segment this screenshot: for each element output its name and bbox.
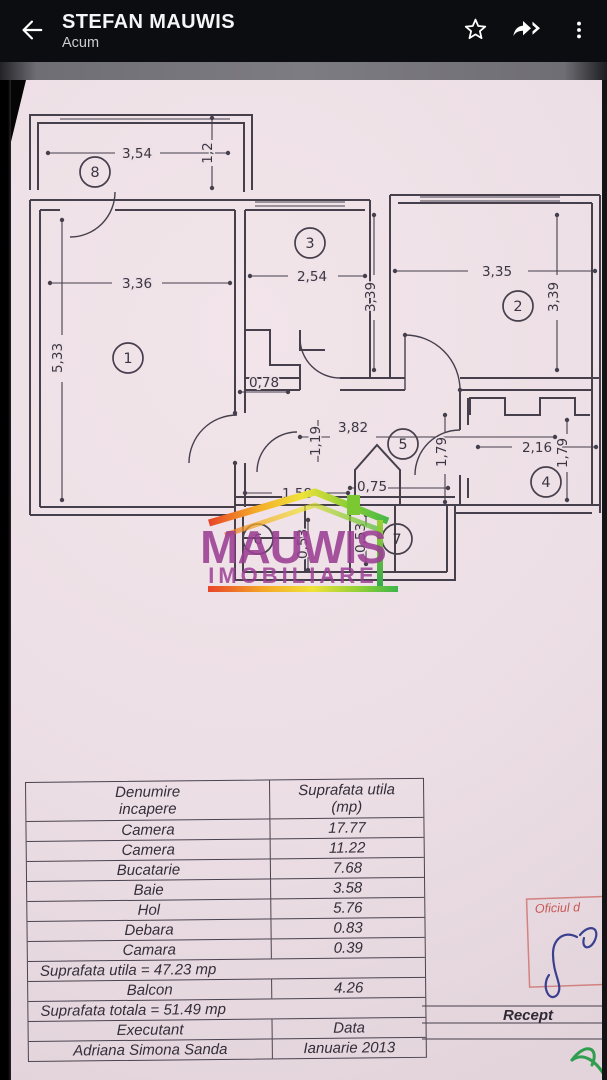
room-name-cell: Hol xyxy=(27,899,271,921)
dimension-label: 1,79 xyxy=(434,437,450,467)
table-row: Camera11.22 xyxy=(27,837,424,861)
vertical-dots-icon xyxy=(568,19,590,44)
dimension-label: 5,33 xyxy=(50,343,66,373)
media-timestamp: Acum xyxy=(62,34,453,52)
room-number: 5 xyxy=(398,437,407,453)
table-row: Suprafata utila = 47.23 mp xyxy=(28,957,425,981)
room-name-cell: Camera xyxy=(26,819,270,841)
room-name-cell: Executant xyxy=(29,1019,273,1041)
phone-screen: STEFAN MAUWIS Acum xyxy=(0,0,607,1080)
dimension-label: 2,54 xyxy=(297,269,327,285)
header-col-area: Suprafata utila (mp) xyxy=(270,779,423,819)
back-button[interactable] xyxy=(14,14,48,48)
room-area-cell: 5.76 xyxy=(271,898,424,919)
room-area-cell: 17.77 xyxy=(270,818,423,839)
room-area-cell: Data xyxy=(272,1018,425,1039)
plan-windows xyxy=(60,119,560,206)
table-body: Camera17.77Camera11.22Bucatarie7.68Baie3… xyxy=(26,817,425,1061)
plan-door-arcs xyxy=(70,192,460,475)
dimension-label: 1,19 xyxy=(308,426,324,456)
room-name-cell: Adriana Simona Sanda xyxy=(29,1039,273,1061)
photo-left-edge xyxy=(0,80,11,1080)
dimension-label: 3,36 xyxy=(122,276,152,292)
room-area-cell: 0.83 xyxy=(271,918,424,939)
room-number: 2 xyxy=(513,299,522,315)
room-name-cell: Debara xyxy=(27,919,271,941)
document-photo[interactable]: 81325467 3,541,23,362,543,353,393,395,33… xyxy=(0,80,607,1080)
dimension-label: 3,39 xyxy=(546,282,562,312)
table-row: ExecutantData xyxy=(29,1017,426,1041)
star-button[interactable] xyxy=(453,9,497,53)
dimension-label: 3,39 xyxy=(363,282,379,312)
room-name-cell: Bucatarie xyxy=(27,859,271,881)
header-name-line2: incapere xyxy=(119,800,177,818)
areas-table: Denumire incapere Suprafata utila (mp) C… xyxy=(25,778,427,1062)
photo-right-edge xyxy=(602,80,607,1080)
room-name-cell: Camara xyxy=(28,939,272,961)
dimension-label: 1,79 xyxy=(555,438,571,468)
forward-button[interactable] xyxy=(505,9,549,53)
room-name-cell: Balcon xyxy=(28,979,272,1001)
table-row: Balcon4.26 xyxy=(28,977,425,1001)
room-name-cell: Camera xyxy=(27,839,271,861)
table-row: Camara0.39 xyxy=(28,937,425,961)
room-number: 1 xyxy=(123,351,132,367)
stamp-text: Oficiul d xyxy=(535,900,582,916)
side-column-label: Recept xyxy=(503,1007,607,1024)
table-row: Bucatarie7.68 xyxy=(27,857,424,881)
table-header: Denumire incapere Suprafata utila (mp) xyxy=(26,779,423,821)
header-area-line1: Suprafata utila xyxy=(298,781,395,799)
room-area-cell: 4.26 xyxy=(272,978,425,999)
room-number: 7 xyxy=(392,532,401,548)
table-row: Suprafata totala = 51.49 mp xyxy=(28,997,425,1021)
plan-dimension-dots xyxy=(46,116,598,572)
conversation-title-block[interactable]: STEFAN MAUWIS Acum xyxy=(62,10,453,52)
room-area-cell: 0.39 xyxy=(272,938,425,959)
dimension-label: 3,54 xyxy=(122,146,152,162)
table-row: Adriana Simona SandaIanuarie 2013 xyxy=(29,1037,426,1061)
table-row: Baie3.58 xyxy=(27,877,424,901)
room-area-cell: 11.22 xyxy=(271,838,424,859)
overflow-menu-button[interactable] xyxy=(557,9,601,53)
dimension-label: 3,35 xyxy=(482,264,512,280)
dimension-label: 0,75 xyxy=(357,479,387,495)
dimension-label: 0,78 xyxy=(249,375,279,391)
room-number: 4 xyxy=(541,475,550,491)
table-row: Debara0.83 xyxy=(27,917,424,941)
pen-mark xyxy=(572,1049,606,1078)
dimension-label: 2,16 xyxy=(522,440,552,456)
logo-chimney xyxy=(347,495,360,515)
room-area-cell: 7.68 xyxy=(271,858,424,879)
room-number: 3 xyxy=(305,236,314,252)
header-name-line1: Denumire xyxy=(115,783,180,801)
app-bar: STEFAN MAUWIS Acum xyxy=(0,0,607,62)
star-icon xyxy=(463,17,488,45)
photo-top-edge xyxy=(0,62,607,80)
forward-double-arrow-icon xyxy=(512,18,542,45)
header-area-line2: (mp) xyxy=(331,798,362,815)
plan-walls xyxy=(30,115,600,580)
table-row: Hol5.76 xyxy=(27,897,424,921)
header-col-name: Denumire incapere xyxy=(26,780,270,821)
dimension-label: 3,82 xyxy=(338,420,368,436)
room-name-cell: Baie xyxy=(27,879,271,901)
dimension-label: 1,2 xyxy=(200,142,216,163)
room-area-cell: 3.58 xyxy=(271,878,424,899)
back-arrow-icon xyxy=(18,17,44,46)
appbar-actions xyxy=(453,9,601,53)
logo-text-sub: IMOBILIARE xyxy=(208,563,378,588)
table-row: Camera17.77 xyxy=(26,817,423,841)
room-area-cell: Ianuarie 2013 xyxy=(273,1038,426,1059)
room-number: 8 xyxy=(90,165,99,181)
contact-name: STEFAN MAUWIS xyxy=(62,10,453,34)
